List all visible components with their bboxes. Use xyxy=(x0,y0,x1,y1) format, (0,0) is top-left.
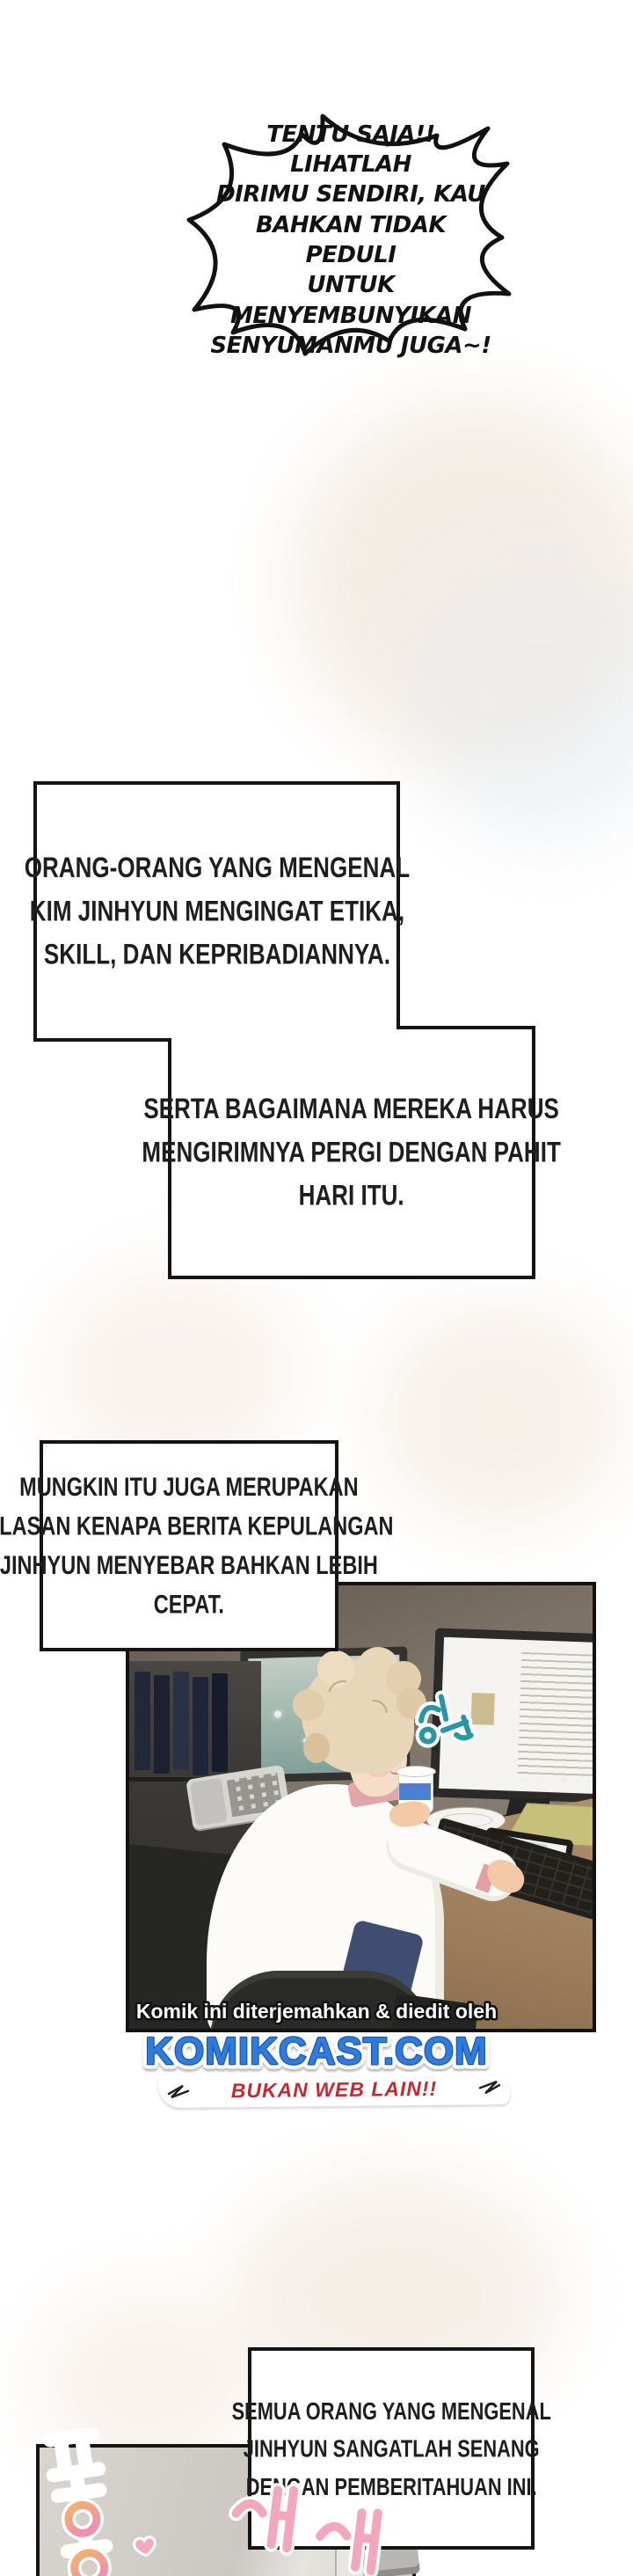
hair-curl xyxy=(303,1733,330,1763)
hair-curl xyxy=(293,1689,324,1721)
speech-bubble-text: TENTU SAJA!! LIHATLAH DIRIMU SENDIRI, KA… xyxy=(209,158,492,322)
banner-scribble-right xyxy=(478,2078,501,2097)
banner-scribble-left xyxy=(167,2082,190,2101)
phone-handset xyxy=(190,1778,228,1826)
watermark-banner: BUKAN WEB LAIN!! xyxy=(158,2071,510,2108)
caption-box-2: SERTA BAGAIMANA MEREKA HARUS MENGIRIMNYA… xyxy=(170,1028,534,1277)
cup-rim xyxy=(396,1766,436,1777)
comic-page: TENTU SAJA!! LIHATLAH DIRIMU SENDIRI, KA… xyxy=(0,0,633,2576)
svg-text:KOMIKCAST.COM: KOMIKCAST.COM xyxy=(145,2030,487,2073)
binders xyxy=(135,1672,245,1775)
caption-text: SERTA BAGAIMANA MEREKA HARUS MENGIRIMNYA… xyxy=(142,1087,561,1218)
caption-box-1: ORANG-ORANG YANG MENGENAL KIM JINHYUN ME… xyxy=(35,783,398,1040)
svg-text:Komik ini diterjemahkan & died: Komik ini diterjemahkan & diedit oleh xyxy=(136,2000,497,2023)
watermark-tagline: BUKAN WEB LAIN!! xyxy=(231,2076,438,2102)
caption-text: ORANG-ORANG YANG MENGENAL KIM JINHYUN ME… xyxy=(24,846,409,977)
background-texture xyxy=(378,1302,624,1531)
caption-box-3: MUNGKIN ITU JUGA MERUPAKAN ALASAN KENAPA… xyxy=(40,1440,338,1651)
cup-blue-band xyxy=(399,1783,431,1800)
screen-document-lines xyxy=(517,1652,596,1782)
heart-icon xyxy=(134,2536,156,2557)
caption-text: MUNGKIN ITU JUGA MERUPAKAN ALASAN KENAPA… xyxy=(0,1467,394,1624)
